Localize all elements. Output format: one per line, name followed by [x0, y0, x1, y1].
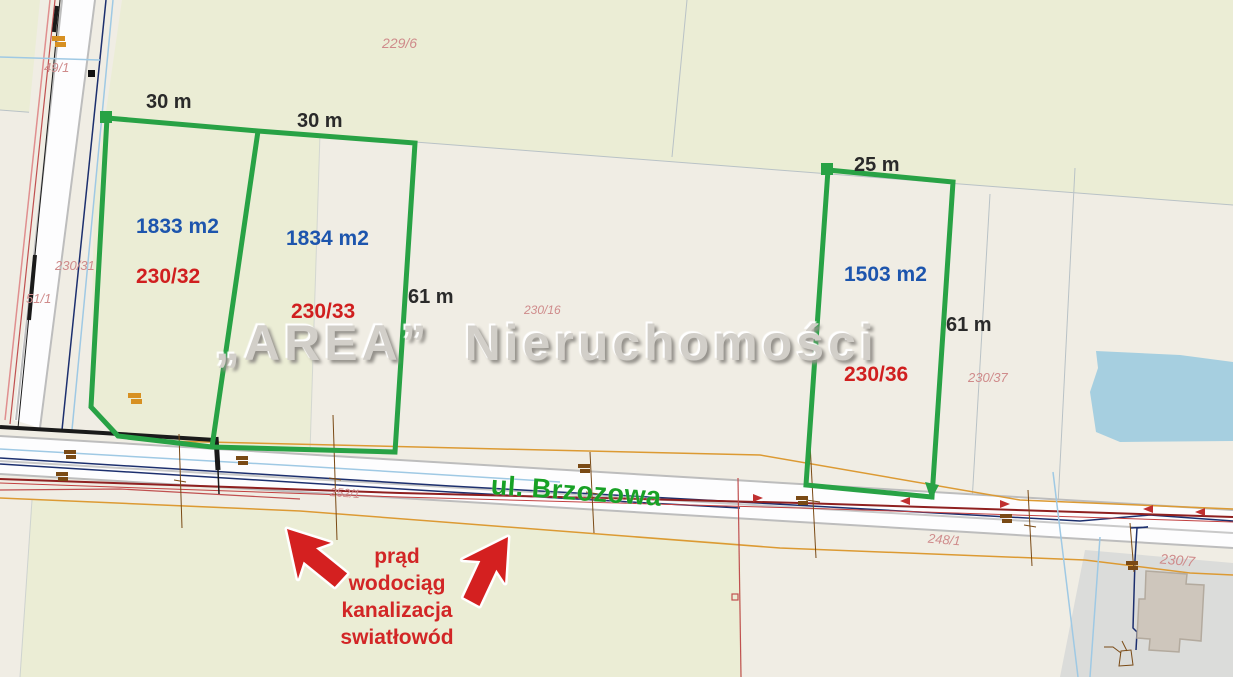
plot-number-230-33: 230/33	[291, 300, 355, 324]
utilities-note: prąd wodociąg kanalizacja swiatłowód	[297, 543, 497, 651]
utilities-note-line-1: prąd	[297, 543, 497, 570]
dim-depth-230-36: 61 m	[946, 314, 992, 337]
dim-frontage-230-32: 30 m	[146, 91, 192, 114]
area-label-230-32: 1833 m2	[136, 215, 219, 239]
cadastral-label-230-37: 230/37	[968, 370, 1008, 385]
area-label-230-36: 1503 m2	[844, 263, 927, 287]
cadastral-label-252-1: 252/1	[330, 485, 361, 501]
pond	[1090, 351, 1233, 442]
cadastral-label-229-6: 229/6	[382, 35, 417, 51]
cadastral-label-230-16: 230/16	[524, 303, 561, 317]
plot-number-230-36: 230/36	[844, 363, 908, 387]
corner-marker-1	[100, 111, 112, 123]
cadastral-map: „AREA” Nieruchomości 229/6 49/1 230/31 5…	[0, 0, 1233, 677]
black-pole-tail	[218, 470, 219, 494]
utilities-note-line-4: swiatłowód	[297, 624, 497, 651]
utilities-note-line-2: wodociąg	[297, 570, 497, 597]
cadastral-label-49-1: 49/1	[44, 60, 69, 75]
dim-depth-230-33: 61 m	[408, 286, 454, 309]
cadastral-label-248-1: 248/1	[927, 531, 961, 549]
corner-marker-2	[821, 163, 833, 175]
dim-frontage-230-33: 30 m	[297, 110, 343, 133]
cadastral-label-51-1: 51/1	[26, 291, 51, 306]
cadastral-label-230-31: 230/31	[55, 258, 95, 273]
black-pole	[216, 437, 218, 470]
cadastral-label-230-7: 230/7	[1159, 551, 1195, 570]
pole-symbol	[88, 70, 95, 77]
dim-frontage-230-36: 25 m	[854, 154, 900, 177]
area-label-230-33: 1834 m2	[286, 227, 369, 251]
green-pocket	[91, 116, 320, 452]
plot-number-230-32: 230/32	[136, 265, 200, 289]
utilities-note-line-3: kanalizacja	[297, 597, 497, 624]
